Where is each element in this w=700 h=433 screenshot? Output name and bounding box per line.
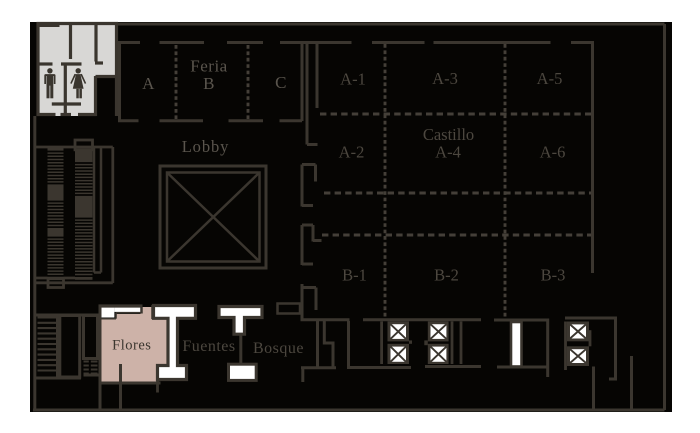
svg-text:Bosque: Bosque <box>253 340 304 357</box>
svg-text:A-5: A-5 <box>537 69 563 88</box>
svg-text:B-3: B-3 <box>541 266 566 285</box>
svg-text:B: B <box>203 74 215 93</box>
svg-text:Lobby: Lobby <box>182 137 230 156</box>
svg-text:Flores: Flores <box>112 338 151 354</box>
svg-text:Fuentes: Fuentes <box>182 338 235 355</box>
svg-text:Feria: Feria <box>190 57 227 76</box>
svg-text:A: A <box>142 74 155 93</box>
svg-text:A-3: A-3 <box>432 69 458 88</box>
svg-text:A-4: A-4 <box>435 143 461 162</box>
svg-text:B-1: B-1 <box>342 266 367 285</box>
svg-text:A-2: A-2 <box>339 143 365 162</box>
svg-text:C: C <box>275 73 287 92</box>
svg-text:Castillo: Castillo <box>423 125 474 144</box>
svg-text:B-2: B-2 <box>434 266 459 285</box>
svg-text:A-6: A-6 <box>540 143 566 162</box>
svg-text:A-1: A-1 <box>340 70 366 89</box>
